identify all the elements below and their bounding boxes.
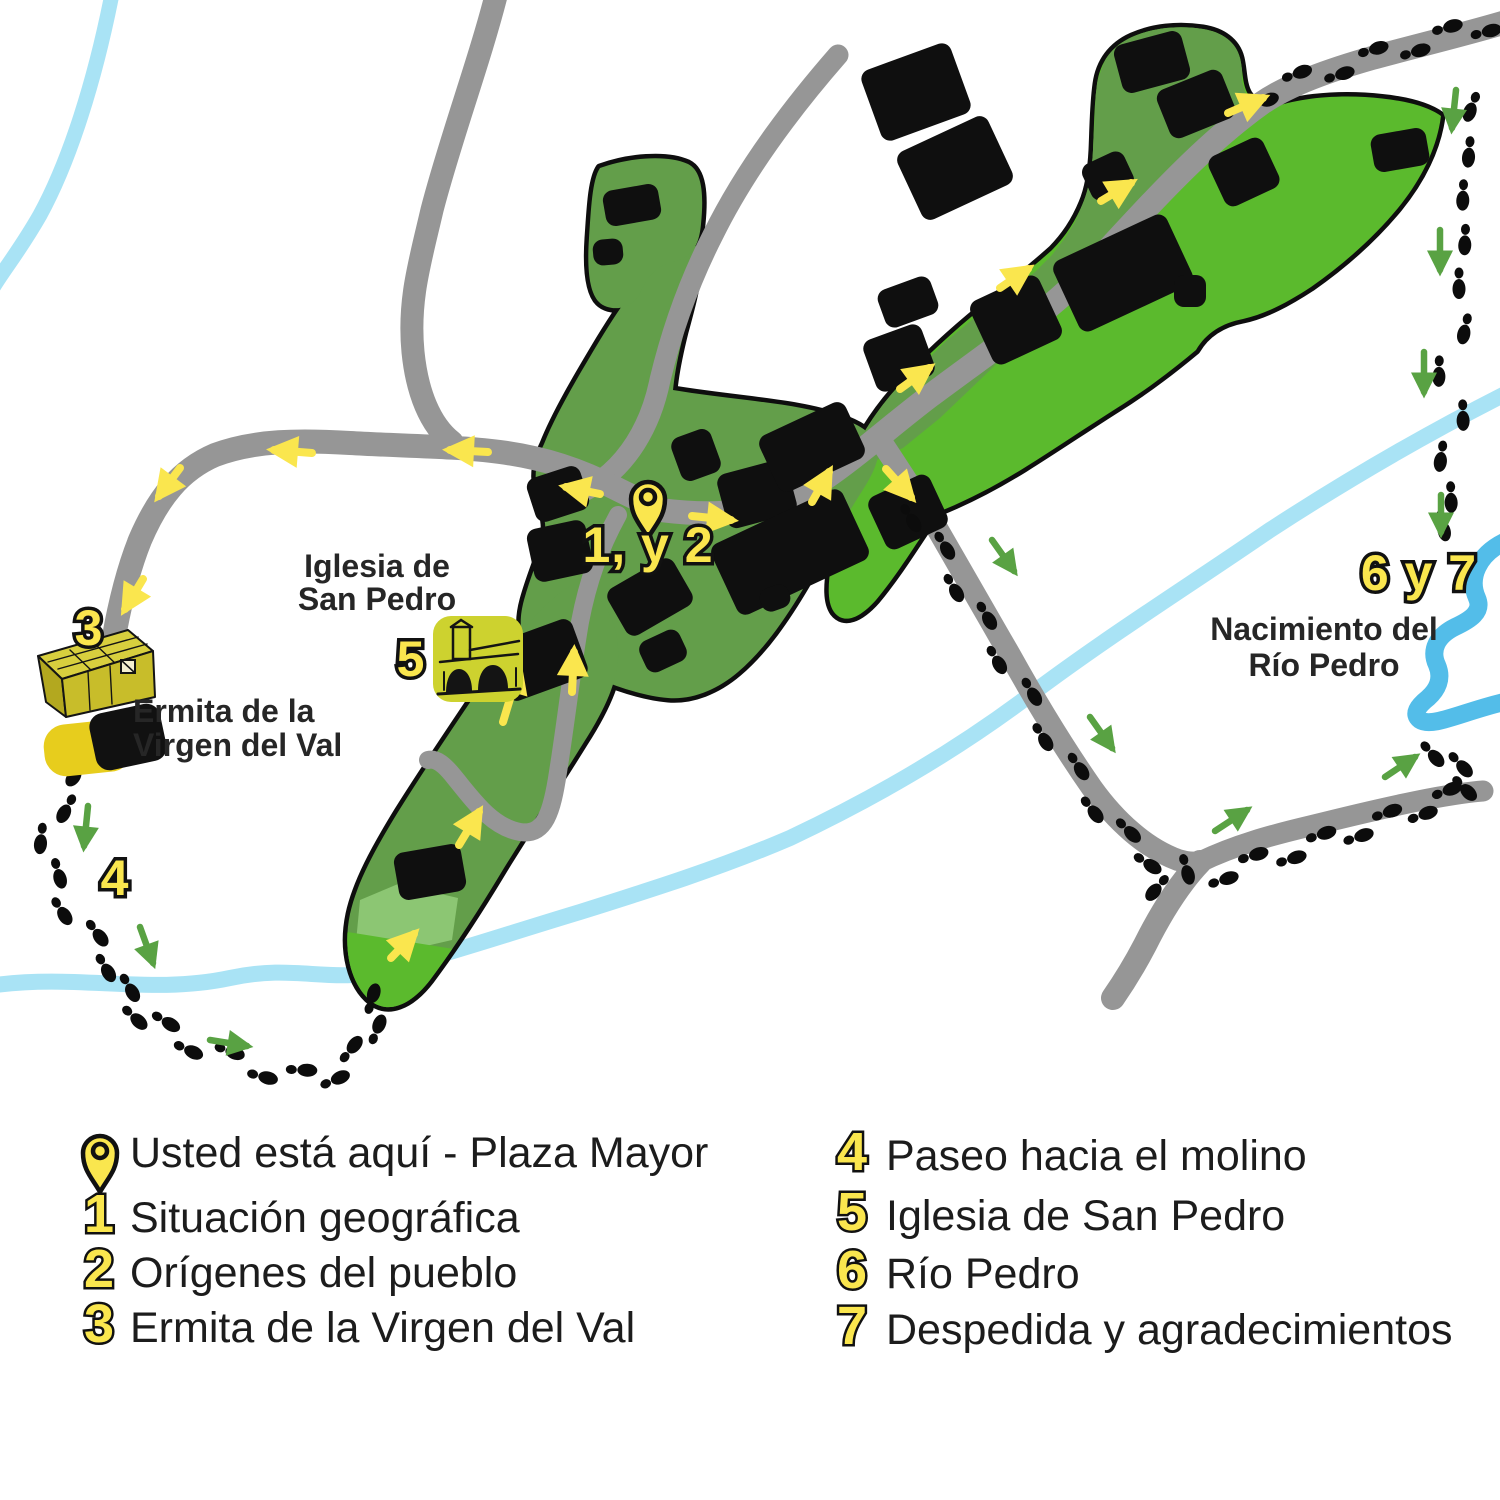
legend: Usted está aquí - Plaza Mayor 1 Situació… <box>83 1122 1453 1356</box>
tour-map-canvas: 1, y 2 3 4 5 6 y 7 Iglesia de San Pedro … <box>0 0 1500 1500</box>
route-arrow-green <box>84 806 88 846</box>
legend-item-4-label: Paseo hacia el molino <box>886 1132 1307 1180</box>
iglesia-icon <box>433 616 523 702</box>
footprint <box>48 856 69 890</box>
footprint <box>286 1063 318 1077</box>
building <box>1174 275 1206 307</box>
river-top-left <box>0 0 112 286</box>
footprint <box>119 1002 151 1033</box>
footprint <box>82 917 112 950</box>
marker-label-3: 3 <box>75 600 104 656</box>
route-arrow-green <box>1385 757 1415 777</box>
route-arrow-yellow <box>572 652 574 692</box>
footprint-trail <box>1432 90 1483 543</box>
village-tour-map-page: 1, y 2 3 4 5 6 y 7 Iglesia de San Pedro … <box>0 0 1500 1500</box>
iglesia-label-line2: San Pedro <box>298 581 456 617</box>
nacimiento-label-line1: Nacimiento del <box>1210 611 1438 647</box>
legend-item-1-label: Situación geográfica <box>130 1194 520 1242</box>
footprint <box>1432 440 1449 473</box>
ermita-label-line2: Virgen del Val <box>133 727 342 763</box>
legend-item-2-label: Orígenes del pueblo <box>130 1249 517 1297</box>
building <box>875 274 941 331</box>
road-fork-east-branch <box>1200 791 1483 862</box>
legend-number-3: 3 <box>84 1294 114 1354</box>
footprint <box>1206 869 1240 891</box>
legend-item-5-label: Iglesia de San Pedro <box>886 1192 1285 1240</box>
ermita-label-line1: Ermita de la <box>133 693 315 729</box>
legend-item-7-label: Despedida y agradecimientos <box>886 1306 1453 1354</box>
footprint <box>1455 312 1475 346</box>
footprint <box>1458 224 1472 256</box>
footprint <box>365 1012 389 1046</box>
footprint <box>171 1038 205 1063</box>
footprint <box>1460 90 1483 124</box>
route-arrow-green <box>1215 810 1247 831</box>
footprint <box>1444 481 1458 513</box>
footprint <box>1456 399 1470 431</box>
route-arrow-green <box>1452 90 1456 128</box>
legend-number-4: 4 <box>837 1122 867 1182</box>
footprint <box>1432 355 1446 387</box>
marker-label-6-7: 6 y 7 <box>1361 545 1477 601</box>
footprint <box>246 1066 280 1086</box>
marker-label-4: 4 <box>101 850 130 906</box>
route-arrow-yellow <box>274 450 312 453</box>
footprint <box>48 894 76 928</box>
footprint <box>318 1067 352 1092</box>
legend-item-3-label: Ermita de la Virgen del Val <box>130 1304 635 1352</box>
footprint <box>1445 749 1476 781</box>
footprint <box>336 1033 366 1066</box>
footprint <box>1342 826 1376 848</box>
footprint <box>53 792 80 826</box>
legend-number-7: 7 <box>837 1296 867 1356</box>
footprint <box>1274 848 1308 870</box>
legend-item-6-label: Río Pedro <box>886 1250 1080 1298</box>
route-arrow-green <box>1090 717 1112 748</box>
route-arrow-green <box>992 540 1014 571</box>
route-arrow-green <box>140 927 153 963</box>
footprint <box>33 822 49 855</box>
footprint <box>1417 738 1448 770</box>
legend-number-5: 5 <box>837 1182 867 1242</box>
iglesia-label-line1: Iglesia de <box>304 548 450 584</box>
legend-you-are-here-label: Usted está aquí - Plaza Mayor <box>130 1129 708 1177</box>
road-north-west <box>412 0 497 442</box>
footprint <box>149 1008 183 1035</box>
marker-label-5: 5 <box>397 631 426 687</box>
legend-number-2: 2 <box>84 1239 114 1299</box>
nacimiento-label-line2: Río Pedro <box>1248 647 1399 683</box>
legend-number-6: 6 <box>837 1240 867 1300</box>
footprint <box>1461 136 1477 169</box>
footprint <box>1453 268 1466 300</box>
footprint <box>1456 179 1470 211</box>
building <box>592 238 624 267</box>
route-arrow-yellow <box>450 450 488 452</box>
legend-number-1: 1 <box>84 1184 114 1244</box>
marker-label-1-2: 1, y 2 <box>582 517 713 573</box>
